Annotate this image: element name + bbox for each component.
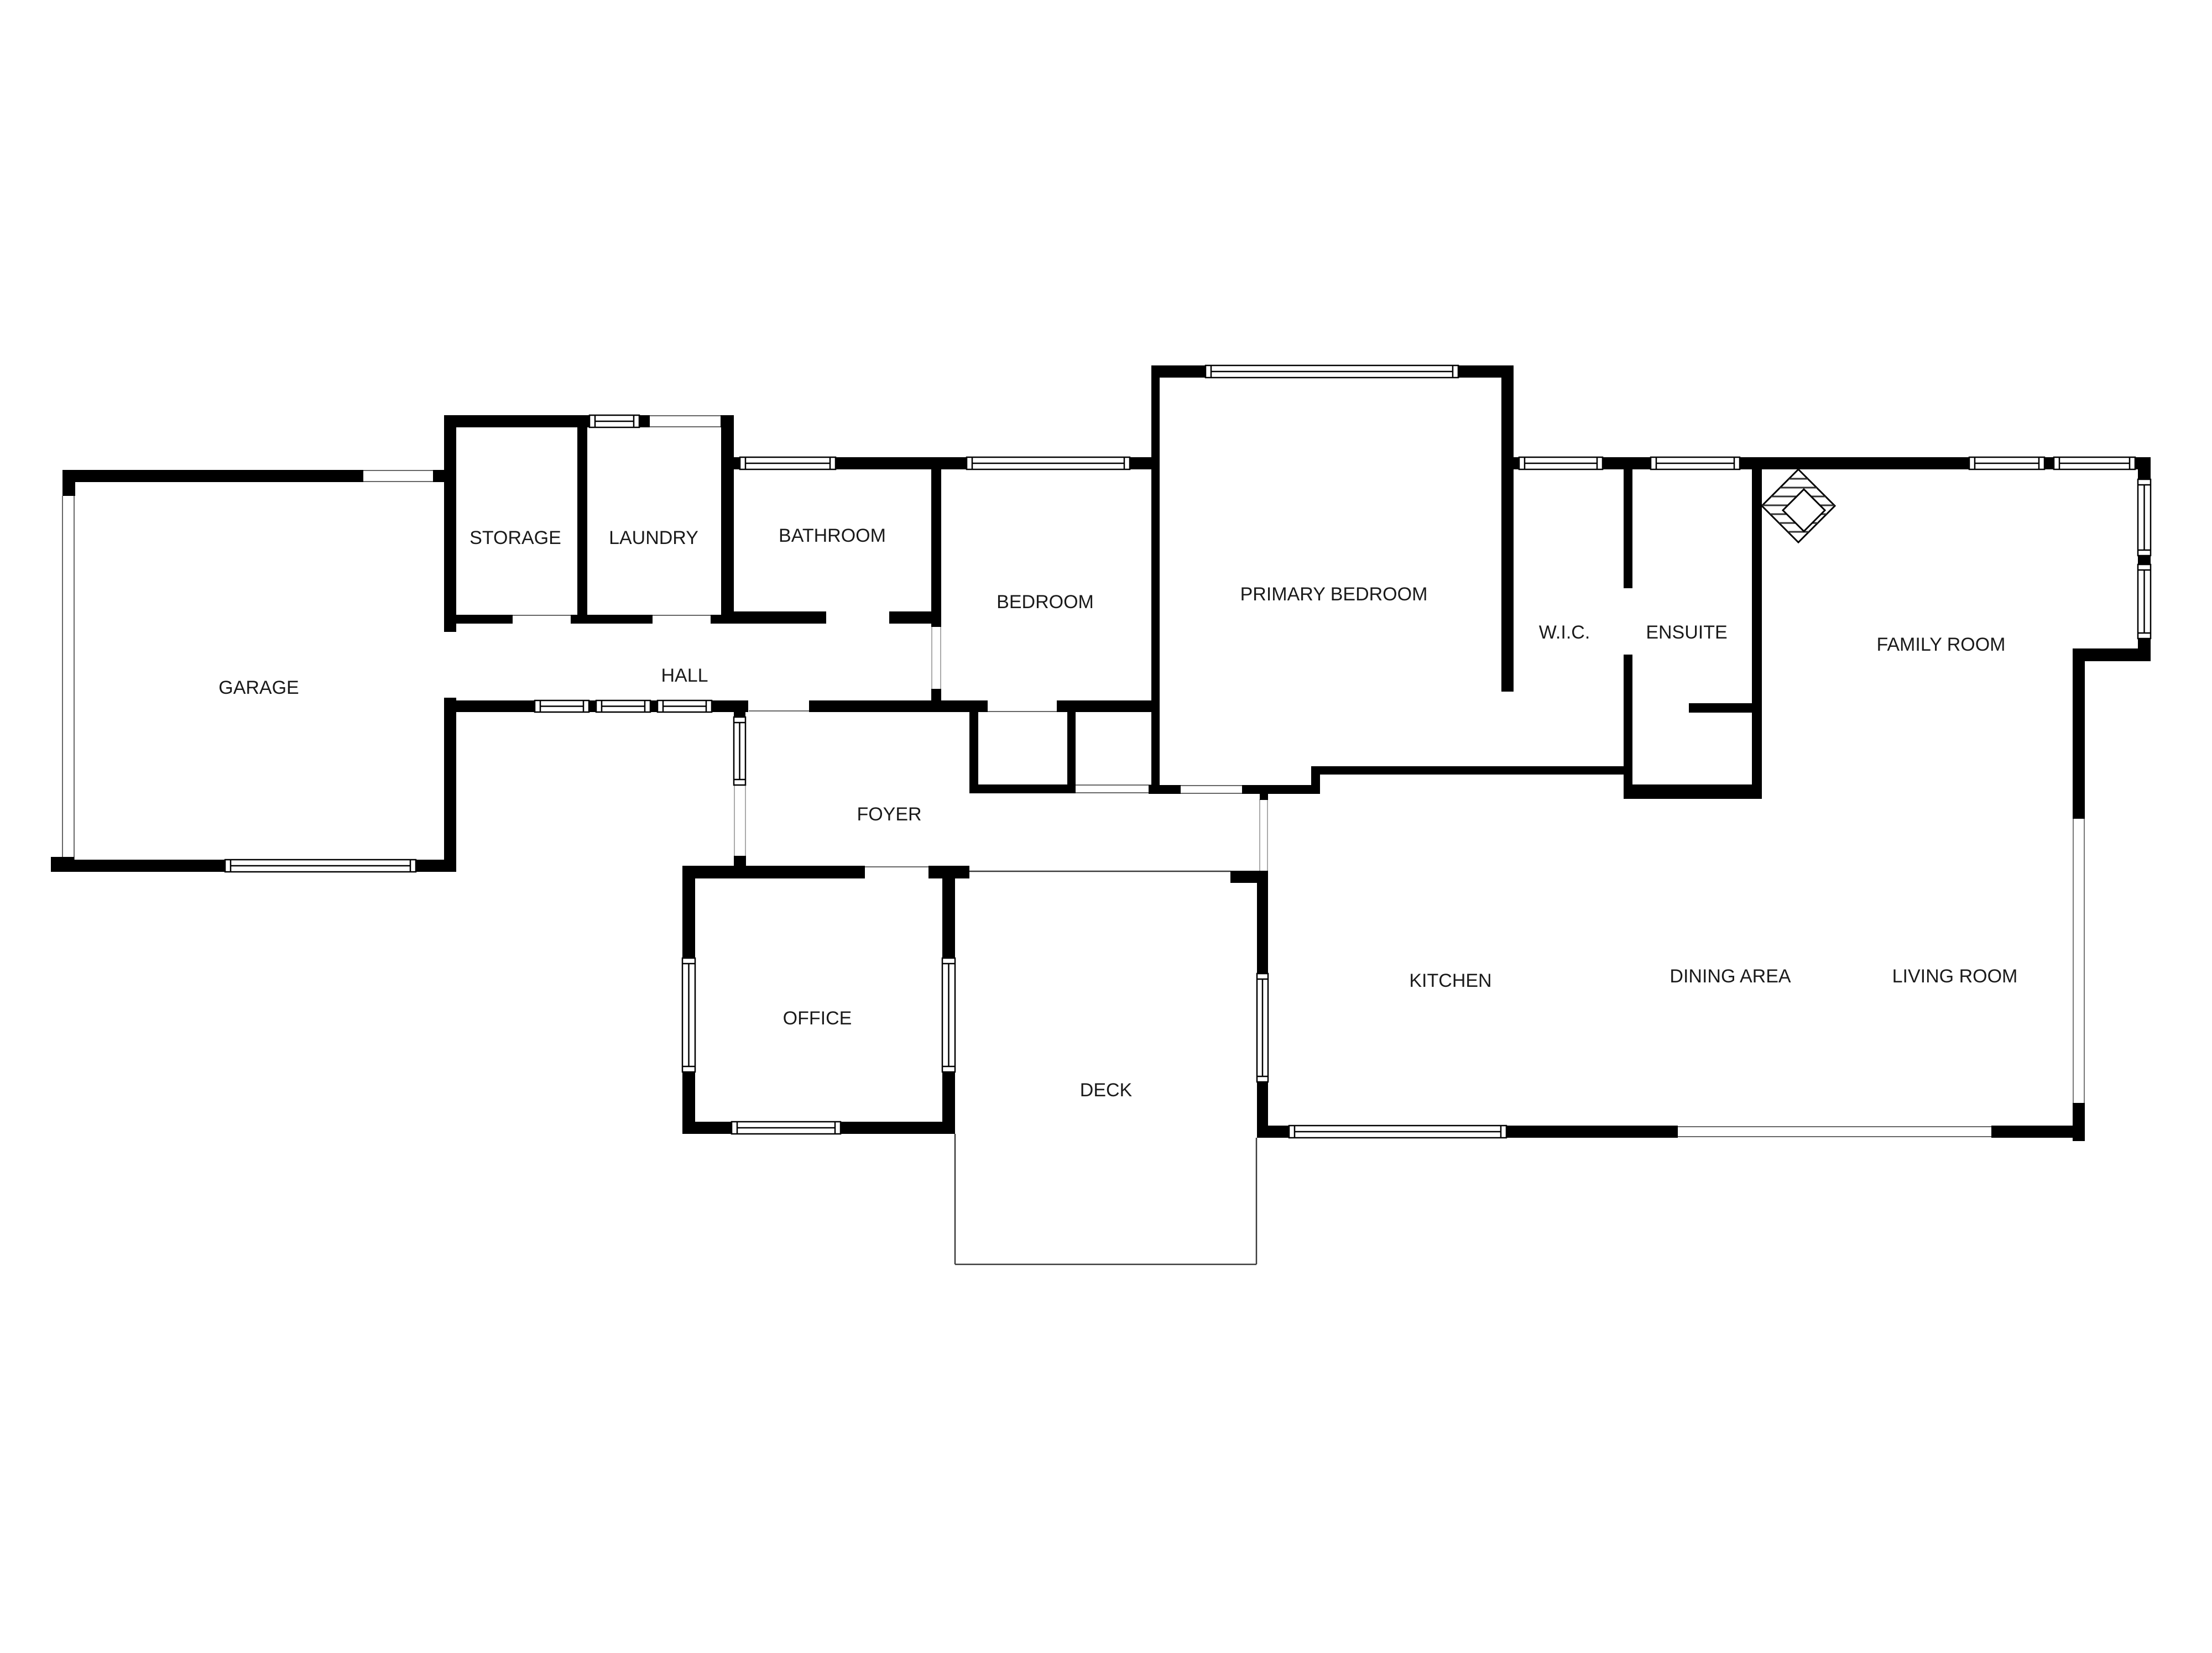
svg-text:ENSUITE: ENSUITE — [1646, 622, 1727, 643]
svg-text:PRIMARY BEDROOM: PRIMARY BEDROOM — [1240, 584, 1428, 605]
svg-text:BEDROOM: BEDROOM — [997, 592, 1094, 613]
svg-text:W.I.C.: W.I.C. — [1539, 622, 1590, 643]
svg-text:FAMILY ROOM: FAMILY ROOM — [1876, 634, 2005, 655]
svg-text:GARAGE: GARAGE — [218, 677, 299, 698]
svg-text:HALL: HALL — [661, 665, 708, 686]
svg-text:OFFICE: OFFICE — [783, 1008, 852, 1029]
svg-text:LAUNDRY: LAUNDRY — [609, 527, 698, 548]
svg-text:BATHROOM: BATHROOM — [779, 525, 886, 546]
svg-text:FOYER: FOYER — [857, 804, 921, 825]
svg-text:DECK: DECK — [1080, 1080, 1133, 1101]
svg-text:LIVING ROOM: LIVING ROOM — [1892, 966, 2018, 987]
svg-text:DINING AREA: DINING AREA — [1670, 966, 1791, 987]
svg-text:STORAGE: STORAGE — [469, 527, 561, 548]
svg-text:KITCHEN: KITCHEN — [1409, 970, 1491, 991]
